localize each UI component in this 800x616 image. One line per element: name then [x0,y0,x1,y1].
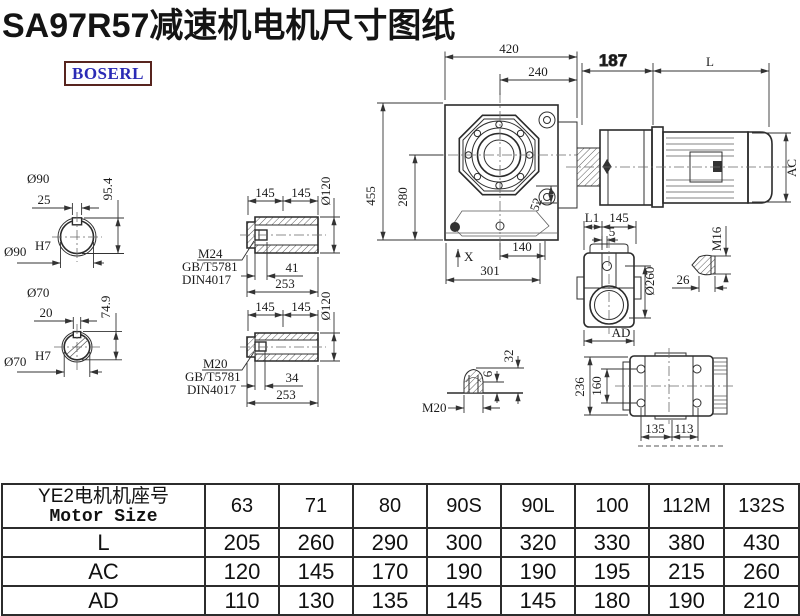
svg-text:74.9: 74.9 [98,296,113,319]
row-label-AD: AD [2,586,205,615]
col-112M: 112M [649,484,724,528]
dim-74-9: 74.9 [82,296,122,360]
dim-X: X [458,249,474,267]
bushing-detail-m24: 145 145 Ø120 M24 GB/T5781 DIN4017 41 253 [182,177,340,297]
svg-text:32: 32 [501,350,516,363]
dim-25: 25 [32,192,99,215]
label-d90: Ø90 [27,171,49,186]
bolt-m16 [692,255,715,275]
svg-text:113: 113 [674,421,693,436]
cell: 205 [205,528,279,557]
svg-text:Ø70: Ø70 [4,354,26,369]
callout-m20: M20 GB/T5781 DIN4017 [185,352,254,397]
header-en: Motor Size [3,507,204,527]
cell: 300 [427,528,501,557]
svg-text:280: 280 [395,187,410,207]
svg-text:25: 25 [38,192,51,207]
col-132S: 132S [724,484,799,528]
cell: 260 [724,557,799,586]
cell: 190 [501,557,575,586]
svg-text:240: 240 [528,64,548,79]
cell: 120 [205,557,279,586]
svg-text:41: 41 [286,260,299,275]
cell: 195 [575,557,649,586]
header-cn: YE2电机机座号 [3,486,204,507]
standard-din: DIN4017 [187,382,237,397]
cell: 330 [575,528,649,557]
gearbox-face-plate [558,122,577,208]
dim-AC: AC [752,133,799,202]
svg-text:5: 5 [609,224,616,239]
dim-253-b: 253 [247,363,318,407]
svg-text:20: 20 [40,305,53,320]
motor-cooling-fins [666,138,734,198]
dim-32: 32 [501,350,518,405]
dim-26: 26 [672,272,727,292]
svg-text:160: 160 [589,376,604,396]
cell: 190 [649,586,724,615]
svg-text:Ø90: Ø90 [4,244,26,259]
callout-m24: M24 GB/T5781 DIN4017 [182,241,254,287]
svg-text:Ø120: Ø120 [318,177,333,206]
svg-text:AD: AD [612,325,631,340]
svg-text:M20: M20 [422,400,447,415]
svg-text:455: 455 [363,186,378,206]
dim-120-a: Ø120 [318,177,340,253]
svg-text:253: 253 [276,387,296,402]
dim-253-a: 253 [247,255,318,297]
shaft-section-90: Ø90 25 95.4 Ø90 H7 [4,171,124,268]
svg-text:Ø260: Ø260 [642,267,657,296]
svg-text:135: 135 [645,421,665,436]
svg-text:420: 420 [499,41,519,56]
svg-text:X: X [464,249,474,264]
svg-text:187: 187 [599,51,627,70]
svg-text:145: 145 [291,185,311,200]
cell: 145 [279,557,353,586]
dim-135-113: 135 113 [641,408,698,441]
dim-187: 187 [582,51,653,125]
svg-text:L: L [706,54,714,69]
col-90S: 90S [427,484,501,528]
motor-end-cap [748,132,772,203]
dim-145-145-b: 145 145 [248,299,318,331]
dim-240: 240 [500,64,577,95]
svg-text:140: 140 [512,239,532,254]
cell: 145 [501,586,575,615]
cell: 130 [279,586,353,615]
cell: 290 [353,528,427,557]
col-90L: 90L [501,484,575,528]
svg-text:253: 253 [275,276,295,291]
gearbox-side-view: L1 145 5 Ø260 AD [577,210,657,346]
tolerance-H7: H7 [35,238,51,253]
cell: 215 [649,557,724,586]
svg-text:M16: M16 [709,226,724,251]
cell: 190 [427,557,501,586]
table-header-row: YE2电机机座号 Motor Size 63 71 80 90S 90L 100… [2,484,799,528]
dim-L: L [653,54,769,127]
cell: 135 [353,586,427,615]
bushing-detail-m20: 145 145 Ø120 M20 GB/T5781 DIN4017 34 253 [185,292,340,407]
cell: 380 [649,528,724,557]
cell: 320 [501,528,575,557]
grease-fitting [603,159,612,174]
svg-text:26: 26 [677,272,691,287]
svg-text:145: 145 [291,299,311,314]
cell: 180 [575,586,649,615]
col-100: 100 [575,484,649,528]
motor-flange-view: 236 160 135 113 [572,348,735,446]
cell: 260 [279,528,353,557]
bolt-detail-m16: M16 26 [672,226,731,292]
drawing-page: { "title": "SA97R57减速机电机尺寸图纸", "logo": {… [0,0,800,613]
shaft-section-70: Ø70 20 74.9 Ø70 H7 [4,285,122,377]
cell: 170 [353,557,427,586]
header-motor-size: YE2电机机座号 Motor Size [2,484,205,528]
tapped-hole-m20 [255,342,266,351]
dim-95-4: 95.4 [82,177,124,253]
svg-text:Ø120: Ø120 [318,292,333,321]
dim-70H7: Ø70 H7 [4,348,102,377]
dim-90H7: Ø90 H7 [4,238,104,268]
dim-280: 280 [395,155,443,240]
dim-52: 52 [527,186,557,213]
standard-din: DIN4017 [182,272,232,287]
svg-text:6: 6 [480,370,495,377]
table-row-AC: AC 120 145 170 190 190 195 215 260 [2,557,799,586]
svg-text:AC: AC [784,159,799,177]
col-80: 80 [353,484,427,528]
dim-20: 20 [34,305,97,329]
bolt-detail-m20: M20 6 32 [422,350,524,416]
motor-dimension-table: YE2电机机座号 Motor Size 63 71 80 90S 90L 100… [1,483,800,616]
table-row-L: L 205 260 290 300 320 330 380 430 [2,528,799,557]
cell: 145 [427,586,501,615]
svg-text:145: 145 [255,299,275,314]
col-71: 71 [279,484,353,528]
svg-text:236: 236 [572,377,587,397]
dim-145-145-a: 145 145 [248,185,318,215]
svg-text:34: 34 [286,370,300,385]
drain-plug [450,222,460,232]
label-d70: Ø70 [27,285,49,300]
dim-140: 140 [500,239,545,260]
svg-text:145: 145 [255,185,275,200]
svg-text:301: 301 [480,263,500,278]
svg-text:95.4: 95.4 [100,177,115,200]
row-label-L: L [2,528,205,557]
cell: 110 [205,586,279,615]
svg-text:L1: L1 [585,210,599,225]
row-label-AC: AC [2,557,205,586]
table-row-AD: AD 110 130 135 145 145 180 190 210 [2,586,799,615]
tolerance-H7: H7 [35,348,51,363]
svg-text:52: 52 [527,196,546,213]
svg-text:145: 145 [609,210,629,225]
cell: 430 [724,528,799,557]
cell: 210 [724,586,799,615]
dim-M20: M20 [422,395,500,415]
dim-455: 455 [363,103,443,240]
dim-120-b: Ø120 [318,292,340,361]
col-63: 63 [205,484,279,528]
